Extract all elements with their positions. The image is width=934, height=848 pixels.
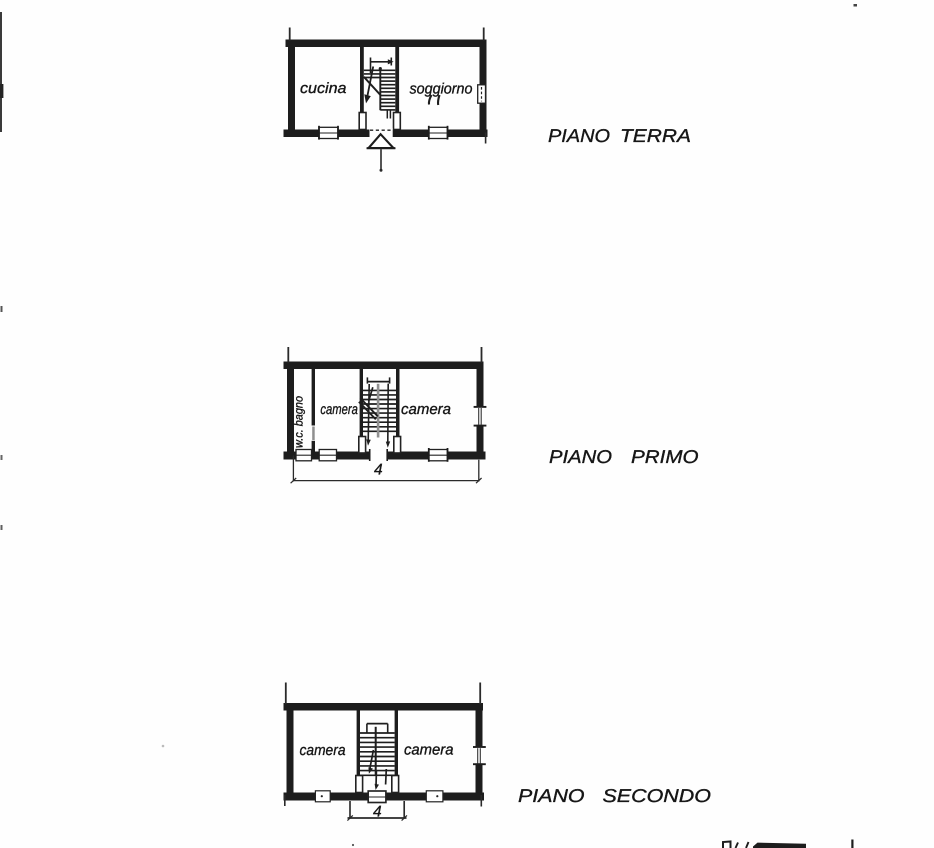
svg-text:PIANO: PIANO xyxy=(548,125,610,146)
svg-text:cucina: cucina xyxy=(300,80,347,97)
svg-text:camera: camera xyxy=(320,402,358,418)
svg-text:PIANO: PIANO xyxy=(518,785,585,806)
svg-text:camera: camera xyxy=(401,401,451,418)
svg-text:soggiorno: soggiorno xyxy=(410,81,473,98)
svg-text:TERRA: TERRA xyxy=(620,125,691,146)
svg-text:camera: camera xyxy=(404,741,454,758)
svg-text:PIANO: PIANO xyxy=(549,446,612,467)
svg-text:PRIMO: PRIMO xyxy=(631,446,699,467)
svg-text:w.c. bagno: w.c. bagno xyxy=(292,396,306,448)
svg-text:4: 4 xyxy=(374,462,383,479)
svg-text:SECONDO: SECONDO xyxy=(603,785,712,806)
svg-text:camera: camera xyxy=(300,742,346,759)
svg-text:4: 4 xyxy=(373,804,382,821)
